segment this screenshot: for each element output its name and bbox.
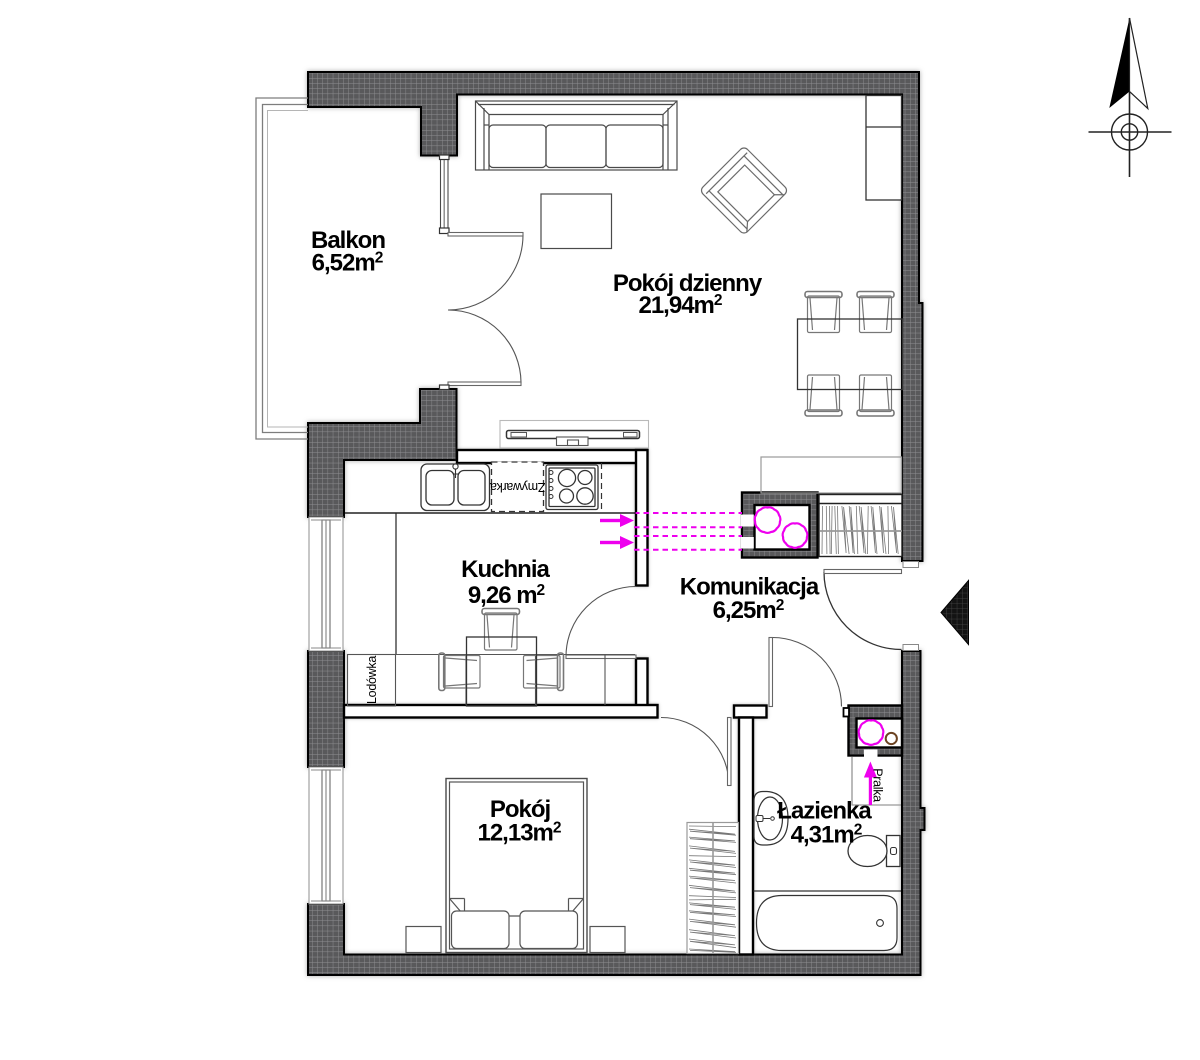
svg-text:Łazienka: Łazienka bbox=[777, 798, 872, 825]
svg-text:4,31m2: 4,31m2 bbox=[791, 822, 862, 849]
svg-text:12,13m2: 12,13m2 bbox=[477, 820, 560, 847]
svg-text:Pralka: Pralka bbox=[871, 768, 885, 802]
svg-text:9,26 m2: 9,26 m2 bbox=[468, 582, 545, 609]
svg-text:Kuchnia: Kuchnia bbox=[461, 556, 550, 583]
svg-text:6,25m2: 6,25m2 bbox=[713, 597, 784, 624]
svg-text:6,52m2: 6,52m2 bbox=[312, 250, 383, 277]
svg-text:Lodówka: Lodówka bbox=[365, 656, 379, 704]
svg-text:Zmywarka: Zmywarka bbox=[490, 480, 546, 494]
svg-text:21,94m2: 21,94m2 bbox=[638, 292, 721, 319]
